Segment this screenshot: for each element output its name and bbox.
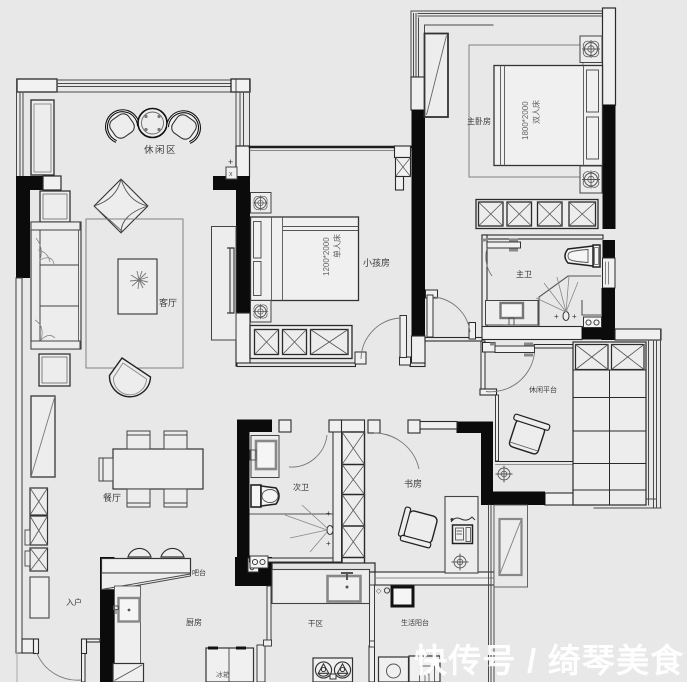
- svg-text:1200*2000: 1200*2000: [322, 237, 331, 276]
- svg-text:1800*2000: 1800*2000: [521, 101, 530, 140]
- svg-text:干区: 干区: [308, 619, 323, 628]
- svg-text:客厅: 客厅: [159, 297, 177, 308]
- svg-text:餐厅: 餐厅: [103, 492, 121, 503]
- svg-text:休闲平台: 休闲平台: [529, 385, 557, 394]
- svg-text:+: +: [228, 157, 233, 167]
- svg-text:次卫: 次卫: [293, 482, 309, 492]
- svg-text:+: +: [326, 539, 331, 548]
- svg-text:双人床: 双人床: [531, 100, 541, 124]
- svg-text:+: +: [554, 312, 559, 321]
- svg-text:书房: 书房: [404, 478, 422, 489]
- svg-text:吧台: 吧台: [192, 568, 206, 577]
- svg-text:快传号 / 绮琴美食: 快传号 / 绮琴美食: [414, 642, 685, 679]
- svg-text:生活阳台: 生活阳台: [401, 618, 429, 627]
- svg-text:x: x: [229, 171, 233, 178]
- svg-text:小孩房: 小孩房: [363, 257, 390, 268]
- svg-text:+: +: [572, 312, 577, 321]
- svg-text:休闲区: 休闲区: [144, 144, 177, 156]
- svg-text:厨房: 厨房: [186, 617, 202, 627]
- svg-text:◇: ◇: [376, 588, 382, 595]
- svg-text:冰箱: 冰箱: [216, 670, 230, 679]
- svg-text:+: +: [326, 509, 331, 518]
- svg-text:单人床: 单人床: [332, 234, 342, 258]
- svg-text:主卫: 主卫: [516, 269, 532, 279]
- svg-text:入户: 入户: [66, 597, 82, 607]
- svg-text:主卧房: 主卧房: [467, 116, 491, 126]
